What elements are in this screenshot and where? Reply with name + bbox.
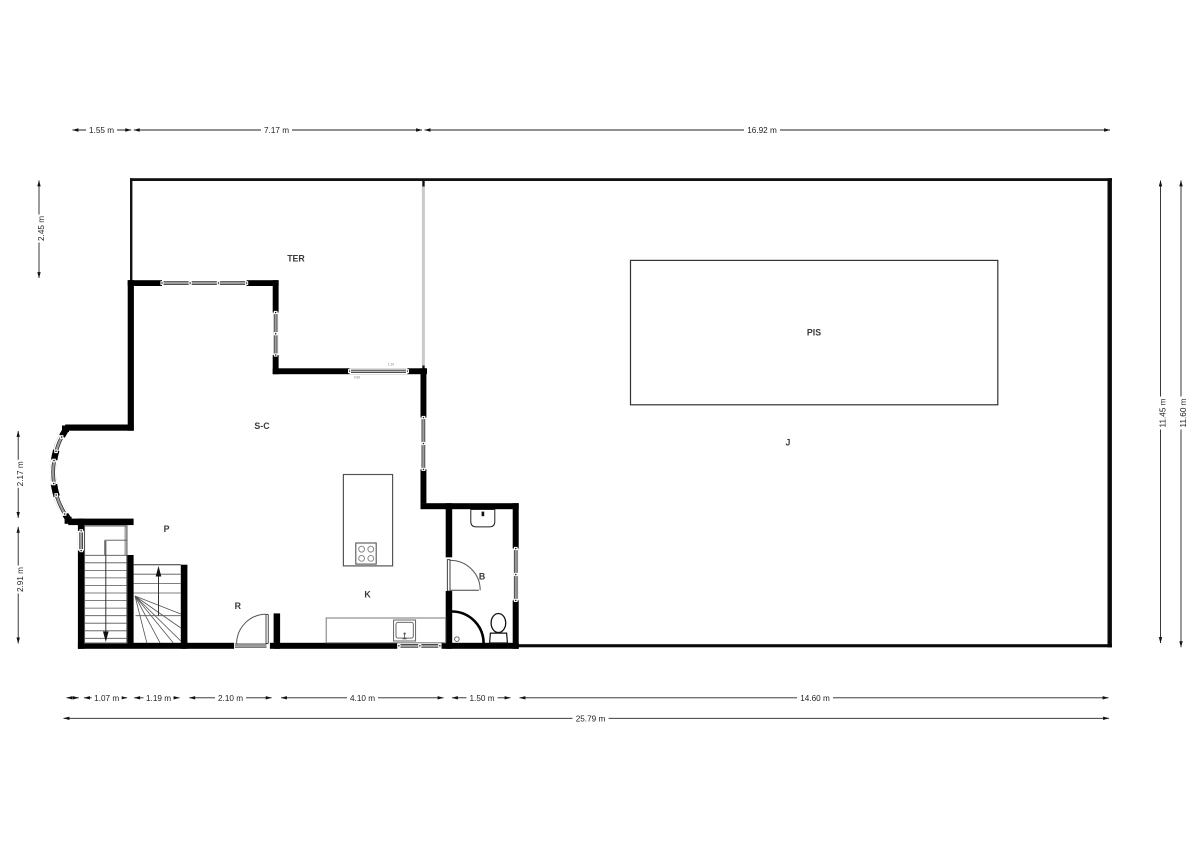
svg-text:K: K	[364, 590, 371, 600]
svg-text:2.17 m: 2.17 m	[16, 461, 25, 486]
svg-text:TER: TER	[287, 254, 305, 264]
svg-text:4.10 m: 4.10 m	[350, 694, 375, 703]
svg-text:2.91 m: 2.91 m	[16, 567, 25, 592]
svg-text:1.19 m: 1.19 m	[146, 694, 171, 703]
svg-text:14.60 m: 14.60 m	[800, 694, 830, 703]
svg-text:11.45 m: 11.45 m	[1158, 398, 1167, 427]
svg-text:1.07 m: 1.07 m	[94, 694, 119, 703]
svg-text:J: J	[786, 438, 791, 448]
svg-text:16.92 m: 16.92 m	[747, 126, 777, 135]
svg-text:11.60 m: 11.60 m	[1179, 398, 1188, 427]
svg-text:2.45 m: 2.45 m	[37, 216, 46, 241]
svg-text:1.10: 1.10	[388, 363, 394, 367]
svg-text:25.79 m: 25.79 m	[576, 714, 606, 723]
svg-text:R: R	[235, 601, 242, 611]
svg-text:S-C: S-C	[254, 421, 270, 431]
svg-text:P: P	[164, 524, 170, 534]
svg-text:0.60: 0.60	[354, 376, 360, 380]
svg-text:2.10 m: 2.10 m	[218, 694, 243, 703]
svg-text:B: B	[479, 572, 485, 582]
svg-text:7.17 m: 7.17 m	[264, 126, 289, 135]
svg-text:PIS: PIS	[807, 328, 821, 338]
svg-text:1.55 m: 1.55 m	[89, 126, 114, 135]
svg-text:1.50 m: 1.50 m	[469, 694, 494, 703]
